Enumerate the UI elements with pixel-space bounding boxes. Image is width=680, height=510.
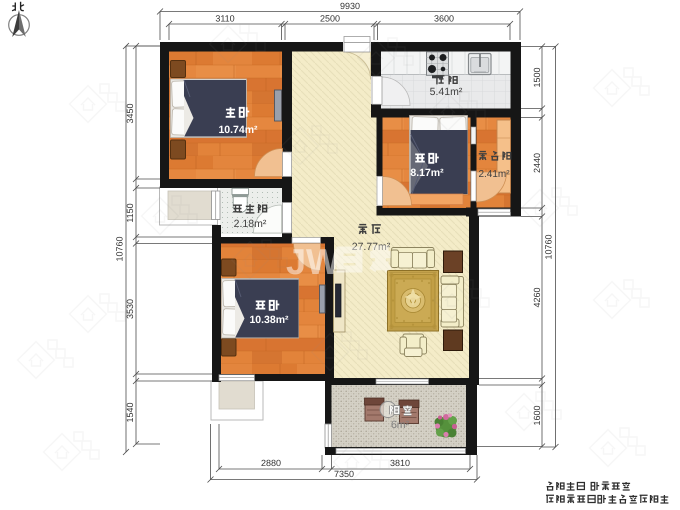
svg-text:10760: 10760 (115, 236, 125, 261)
svg-text:7350: 7350 (334, 469, 354, 479)
svg-text:9930: 9930 (340, 1, 360, 11)
svg-text:1540: 1540 (125, 402, 135, 422)
svg-text:3450: 3450 (125, 103, 135, 123)
svg-text:JW: JW (286, 241, 340, 282)
svg-text:3530: 3530 (125, 299, 135, 319)
svg-text:1500: 1500 (532, 67, 542, 87)
svg-text:1150: 1150 (125, 203, 135, 222)
svg-text:6m²: 6m² (391, 419, 410, 431)
svg-text:10.74m²: 10.74m² (218, 124, 258, 136)
svg-text:3110: 3110 (215, 14, 234, 24)
svg-text:2500: 2500 (320, 14, 340, 24)
svg-text:2880: 2880 (261, 458, 281, 468)
svg-text:2.18m²: 2.18m² (234, 218, 267, 230)
svg-text:10760: 10760 (544, 234, 554, 259)
svg-text:3810: 3810 (390, 458, 410, 468)
svg-text:3600: 3600 (434, 14, 454, 24)
svg-text:2.41m²: 2.41m² (478, 169, 510, 180)
svg-text:1600: 1600 (532, 405, 542, 425)
svg-text:8.17m²: 8.17m² (410, 167, 444, 179)
svg-text:10.38m²: 10.38m² (249, 314, 289, 326)
svg-text:2440: 2440 (532, 153, 542, 173)
svg-text:4260: 4260 (532, 287, 542, 307)
